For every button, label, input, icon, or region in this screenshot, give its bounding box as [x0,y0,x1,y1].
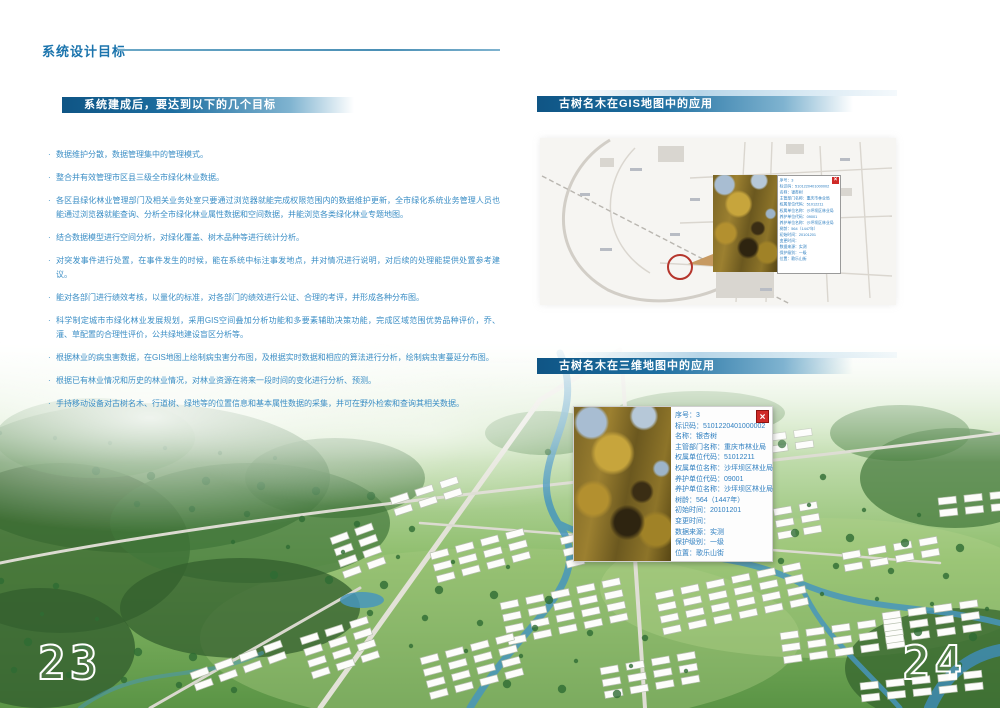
bullet-item: ·根据林业的病虫害数据，在GIS地图上绘制病虫害分布图，及根据实时数据和相应的算… [48,351,500,365]
info-field-row: 主管部门名称：重庆市林业局 [675,443,769,454]
info-field-row: 养护单位代码：09001 [675,475,769,486]
title-rule-line [118,49,500,51]
bullet-item: ·数据维护分散，数据管理集中的管理模式。 [48,148,500,162]
goals-bullet-list: ·数据维护分散，数据管理集中的管理模式。·整合并有效管理市区县三级全市绿化林业数… [48,148,500,420]
info-field-row: 树龄：564（1447年） [675,496,769,507]
tree-photo-inset [713,175,777,272]
tree-info-fields-gis: 序号：3标识码：5101220401000002名称：银杏树主管部门名称：重庆市… [778,176,841,262]
bullet-item: ·科学制定城市市绿化林业发展规划，采用GIS空间叠加分析功能和多要素辅助决策功能… [48,314,500,342]
bar-highlight-band [567,90,897,96]
tree-info-fields-3d: 序号：3标识码：5101220401000002名称：银杏树主管部门名称：重庆市… [675,411,769,559]
bullet-item: ·对突发事件进行处置，在事件发生的时候，能在系统中标注事发地点，并对情况进行说明… [48,254,500,282]
info-field-row: 标识码：5101220401000002 [675,422,769,433]
close-icon[interactable]: × [832,177,839,184]
bar-highlight-band [567,352,897,358]
bullet-item: ·能对各部门进行绩效考核，以量化的标准，对各部门的绩效进行公证、合理的考评，并形… [48,291,500,305]
bullet-item: ·结合数据模型进行空间分析，对绿化覆盖、树木品种等进行统计分析。 [48,231,500,245]
bullet-item: ·根据已有林业情况和历史的林业情况，对林业资源在将来一段时间的变化进行分析、预测… [48,374,500,388]
bullet-item: ·各区县绿化林业管理部门及相关业务处室只要通过浏览器就能完成权限范围内的数据维护… [48,194,500,222]
page-number-left: 23 [38,636,101,690]
section-bar-goals-label: 系统建成后，要达到以下的几个目标 [84,99,276,111]
close-icon[interactable]: × [756,410,769,423]
page-number-right: 24 [903,636,966,690]
info-field-row: 权属单位名称：沙坪坝区林业局 [675,464,769,475]
info-field-row: 权属单位代码：51012211 [675,453,769,464]
info-field-row: 名称：银杏树 [675,432,769,443]
section-bar-3d-application: 古树名木在三维地图中的应用 [537,358,853,374]
section-bar-3d-label: 古树名木在三维地图中的应用 [559,360,715,372]
info-field-row: 养护单位名称：沙坪坝区林业局 [675,485,769,496]
gis-map-screenshot: × 序号：3标识码：5101220401000002名称：银杏树主管部门名称：重… [540,138,896,305]
bullet-item: ·手持移动设备对古树名木、行道树、绿地等的位置信息和基本属性数据的采集，并可在野… [48,397,500,411]
tree-info-popup-gis: × 序号：3标识码：5101220401000002名称：银杏树主管部门名称：重… [777,175,841,274]
info-field-row: 保护级别：一级 [675,538,769,549]
info-field-row: 数据来源：实测 [675,528,769,539]
info-field-row: 序号：3 [675,411,769,422]
section-bar-gis-application: 古树名木在GIS地图中的应用 [537,96,853,112]
info-field-row: 初始时间：20101201 [675,506,769,517]
info-field-row: 变更时间： [675,517,769,528]
info-field-row: 位置：歌乐山街 [780,256,841,262]
page-title: 系统设计目标 [42,41,126,60]
bullet-item: ·整合并有效管理市区县三级全市绿化林业数据。 [48,171,500,185]
info-field-row: 位置：歌乐山街 [675,549,769,560]
tree-photo [574,407,671,561]
section-bar-gis-label: 古树名木在GIS地图中的应用 [559,98,713,110]
tree-info-popup-3d: × 序号：3标识码：5101220401000002名称：银杏树主管部门名称：重… [573,406,773,562]
section-bar-goals: 系统建成后，要达到以下的几个目标 [62,97,354,113]
